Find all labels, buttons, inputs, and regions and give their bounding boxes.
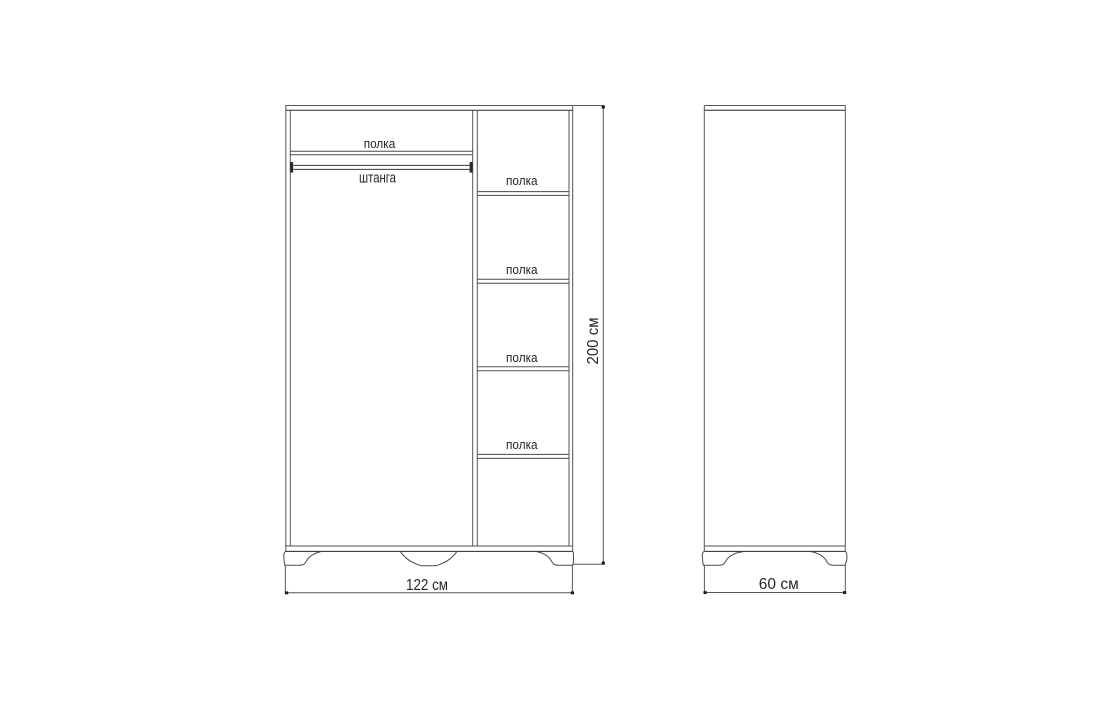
svg-text:полка: полка [506,350,538,365]
svg-text:полка: полка [506,262,538,277]
svg-text:штанга: штанга [359,170,396,187]
svg-text:122 см: 122 см [406,577,448,594]
svg-text:60 см: 60 см [759,576,799,593]
svg-text:полка: полка [506,437,538,452]
svg-text:полка: полка [364,136,396,151]
svg-text:200 см: 200 см [585,318,602,365]
svg-text:полка: полка [506,173,538,188]
